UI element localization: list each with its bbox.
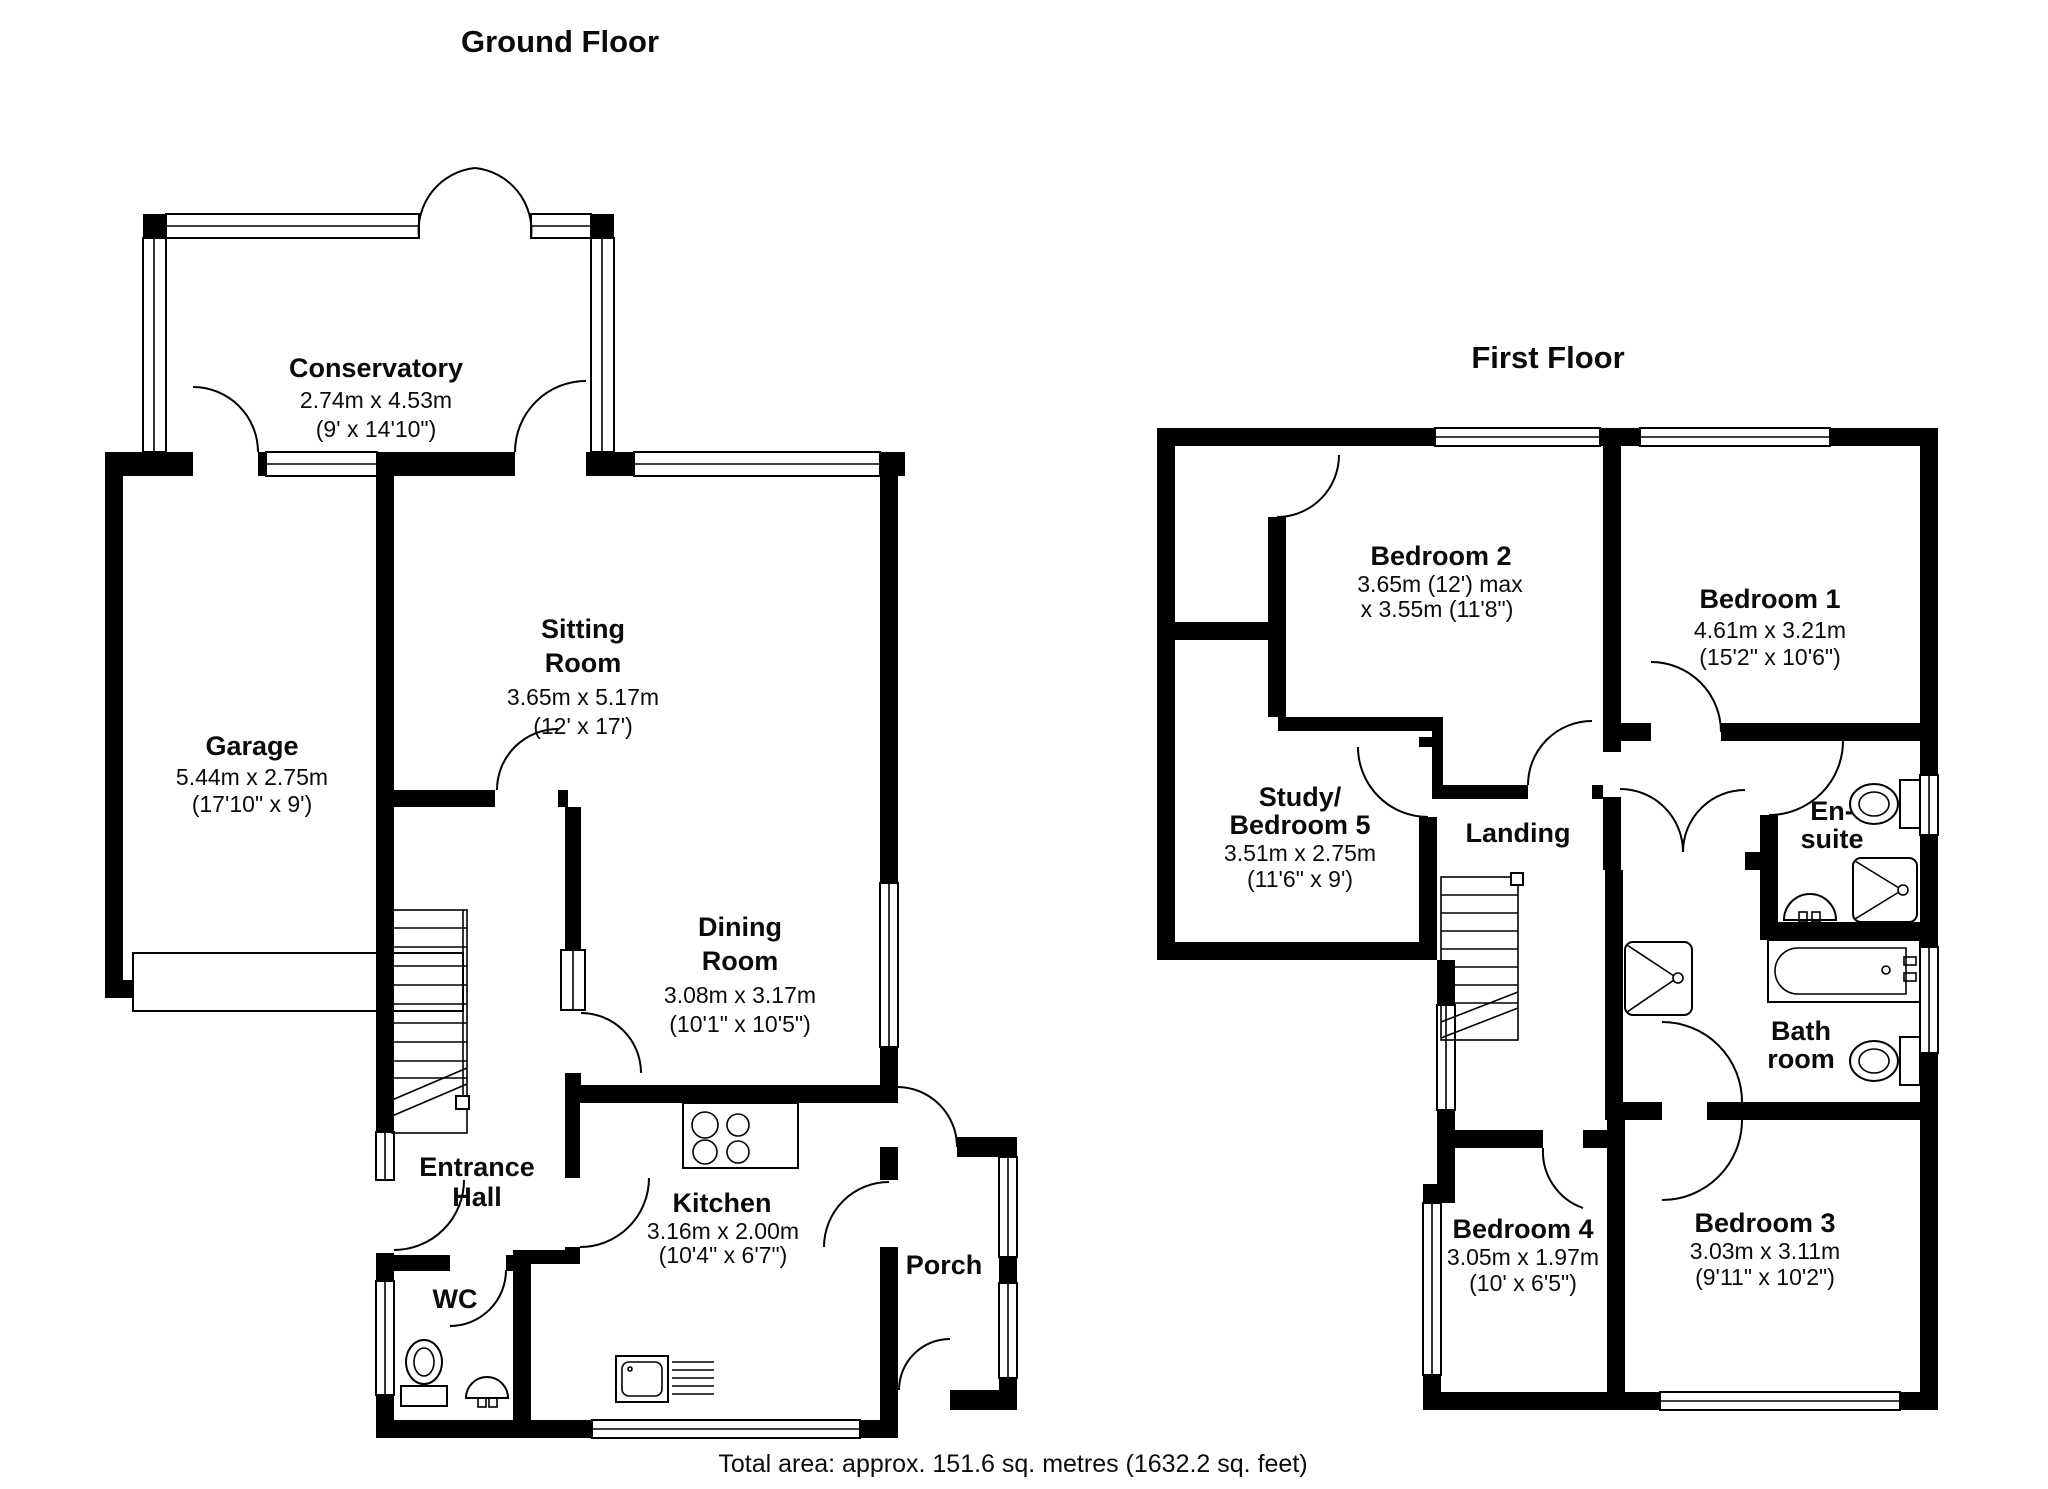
ensuite-basin <box>1784 894 1836 922</box>
door-arc-porch-inner <box>897 1087 957 1147</box>
svg-text:3.65m x 5.17m: 3.65m x 5.17m <box>507 684 659 710</box>
svg-text:2.74m x 4.53m: 2.74m x 4.53m <box>300 387 452 413</box>
svg-text:Study/: Study/ <box>1259 782 1342 812</box>
cupboard-door-right <box>1683 790 1745 852</box>
svg-text:4.61m x 3.21m: 4.61m x 3.21m <box>1694 617 1846 643</box>
svg-text:3.05m x 1.97m: 3.05m x 1.97m <box>1447 1244 1599 1270</box>
svg-text:suite: suite <box>1800 824 1863 854</box>
landing-label: Landing <box>1466 818 1571 848</box>
door-arc-kitchen-porch <box>824 1182 889 1247</box>
svg-text:Garage: Garage <box>205 731 298 761</box>
door-arc-porch-front <box>899 1339 950 1390</box>
svg-text:(11'6" x 9'): (11'6" x 9') <box>1247 866 1353 892</box>
door-arc-bathroom <box>1662 1022 1742 1102</box>
wc-label: WC <box>433 1284 478 1314</box>
svg-text:3.08m x 3.17m: 3.08m x 3.17m <box>664 982 816 1008</box>
svg-text:Dining: Dining <box>698 912 782 942</box>
french-door-arc-left <box>419 168 475 238</box>
svg-text:3.16m x 2.00m: 3.16m x 2.00m <box>647 1218 799 1244</box>
wc-basin <box>466 1377 508 1407</box>
svg-text:(10'1" x 10'5"): (10'1" x 10'5") <box>669 1011 810 1037</box>
stair-newel <box>456 1096 469 1109</box>
door-arc-bedroom3 <box>1662 1120 1742 1200</box>
bedroom3-label: Bedroom 3 3.03m x 3.11m (9'11" x 10'2") <box>1690 1208 1840 1290</box>
door-arc-bedroom4 <box>1543 1148 1583 1208</box>
entrance-hall-label: Entrance Hall <box>419 1152 535 1212</box>
floorplan-page: Ground Floor Conservatory 2.74m x 4.53m … <box>0 0 2048 1489</box>
svg-text:Hall: Hall <box>452 1182 502 1212</box>
svg-text:Conservatory: Conservatory <box>289 353 463 383</box>
french-door-arc-right <box>475 168 531 238</box>
dining-room-label: Dining Room 3.08m x 3.17m (10'1" x 10'5"… <box>664 912 816 1037</box>
svg-text:(15'2" x 10'6"): (15'2" x 10'6") <box>1699 644 1840 670</box>
ensuite-toilet <box>1850 780 1920 828</box>
door-arc-dining <box>581 1013 641 1073</box>
bathroom-shower <box>1625 942 1692 1015</box>
ground-floor-plan: Ground Floor Conservatory 2.74m x 4.53m … <box>105 24 1017 1438</box>
svg-text:En-: En- <box>1810 796 1854 826</box>
svg-text:(9'11" x 10'2"): (9'11" x 10'2") <box>1695 1264 1835 1290</box>
first-floor-plan: First Floor Bedroom 2 3.65m (12') max x … <box>1157 340 1938 1410</box>
svg-text:Sitting: Sitting <box>541 614 625 644</box>
svg-text:Entrance: Entrance <box>419 1152 535 1182</box>
total-area-text: Total area: approx. 151.6 sq. metres (16… <box>718 1450 1307 1478</box>
garage-door <box>133 953 463 1011</box>
study-bedroom5-label: Study/ Bedroom 5 3.51m x 2.75m (11'6" x … <box>1224 782 1376 892</box>
svg-text:x 3.55m (11'8"): x 3.55m (11'8") <box>1361 596 1514 622</box>
svg-text:Kitchen: Kitchen <box>672 1188 771 1218</box>
conservatory-label: Conservatory 2.74m x 4.53m (9' x 14'10") <box>289 353 463 442</box>
door-arc-study <box>1358 747 1428 817</box>
bathroom-toilet <box>1850 1037 1920 1085</box>
svg-text:Bedroom 5: Bedroom 5 <box>1229 810 1370 840</box>
bedroom1-label: Bedroom 1 4.61m x 3.21m (15'2" x 10'6") <box>1694 584 1846 670</box>
sitting-room-label: Sitting Room 3.65m x 5.17m (12' x 17') <box>507 614 659 739</box>
floorplan-drawing: Ground Floor Conservatory 2.74m x 4.53m … <box>0 0 2048 1489</box>
svg-text:Bedroom 4: Bedroom 4 <box>1452 1214 1593 1244</box>
first-floor-title: First Floor <box>1471 340 1624 375</box>
svg-text:(10'4" x 6'7"): (10'4" x 6'7") <box>659 1242 788 1268</box>
svg-text:Room: Room <box>545 648 622 678</box>
svg-text:Bedroom 3: Bedroom 3 <box>1694 1208 1835 1238</box>
svg-text:5.44m x 2.75m: 5.44m x 2.75m <box>176 764 328 790</box>
door-arc-conservatory-sitting <box>515 381 586 452</box>
svg-text:3.03m x 3.11m: 3.03m x 3.11m <box>1690 1238 1840 1264</box>
wc-toilet <box>401 1340 447 1406</box>
door-arc-bedroom1 <box>1651 662 1721 732</box>
svg-text:Bedroom 2: Bedroom 2 <box>1370 541 1511 571</box>
svg-text:Room: Room <box>702 946 779 976</box>
stove <box>683 1103 798 1168</box>
svg-text:3.65m (12') max: 3.65m (12') max <box>1357 571 1523 597</box>
svg-text:Bath: Bath <box>1771 1016 1831 1046</box>
porch-label: Porch <box>906 1250 983 1280</box>
svg-text:(17'10" x 9'): (17'10" x 9') <box>192 791 313 817</box>
svg-text:(12' x 17'): (12' x 17') <box>533 713 633 739</box>
kitchen-sink <box>616 1356 714 1402</box>
garage-label: Garage 5.44m x 2.75m (17'10" x 9') <box>176 731 328 817</box>
door-arc-bedroom2-nw <box>1277 455 1339 517</box>
bedroom4-label: Bedroom 4 3.05m x 1.97m (10' x 6'5") <box>1447 1214 1599 1296</box>
ground-walls <box>105 452 1017 1438</box>
door-arc-conservatory-garage <box>193 387 258 452</box>
door-arc-bedroom2 <box>1528 721 1592 785</box>
svg-text:room: room <box>1767 1044 1835 1074</box>
kitchen-label: Kitchen 3.16m x 2.00m (10'4" x 6'7") <box>647 1188 799 1268</box>
ground-floor-title: Ground Floor <box>461 24 659 59</box>
bathroom-label: Bath room <box>1767 1016 1835 1074</box>
svg-text:3.51m x 2.75m: 3.51m x 2.75m <box>1224 840 1376 866</box>
bedroom2-label: Bedroom 2 3.65m (12') max x 3.55m (11'8"… <box>1357 541 1523 622</box>
svg-text:Bedroom 1: Bedroom 1 <box>1699 584 1840 614</box>
bath-tub <box>1768 940 1920 1002</box>
ground-stairs <box>392 910 469 1133</box>
svg-text:(9' x 14'10"): (9' x 14'10") <box>316 416 437 442</box>
door-arc-kitchen <box>580 1178 649 1247</box>
stair-newel-first <box>1511 873 1523 885</box>
cupboard-door-left <box>1620 789 1683 852</box>
svg-text:(10' x 6'5"): (10' x 6'5") <box>1469 1270 1577 1296</box>
ensuite-shower <box>1853 858 1917 922</box>
